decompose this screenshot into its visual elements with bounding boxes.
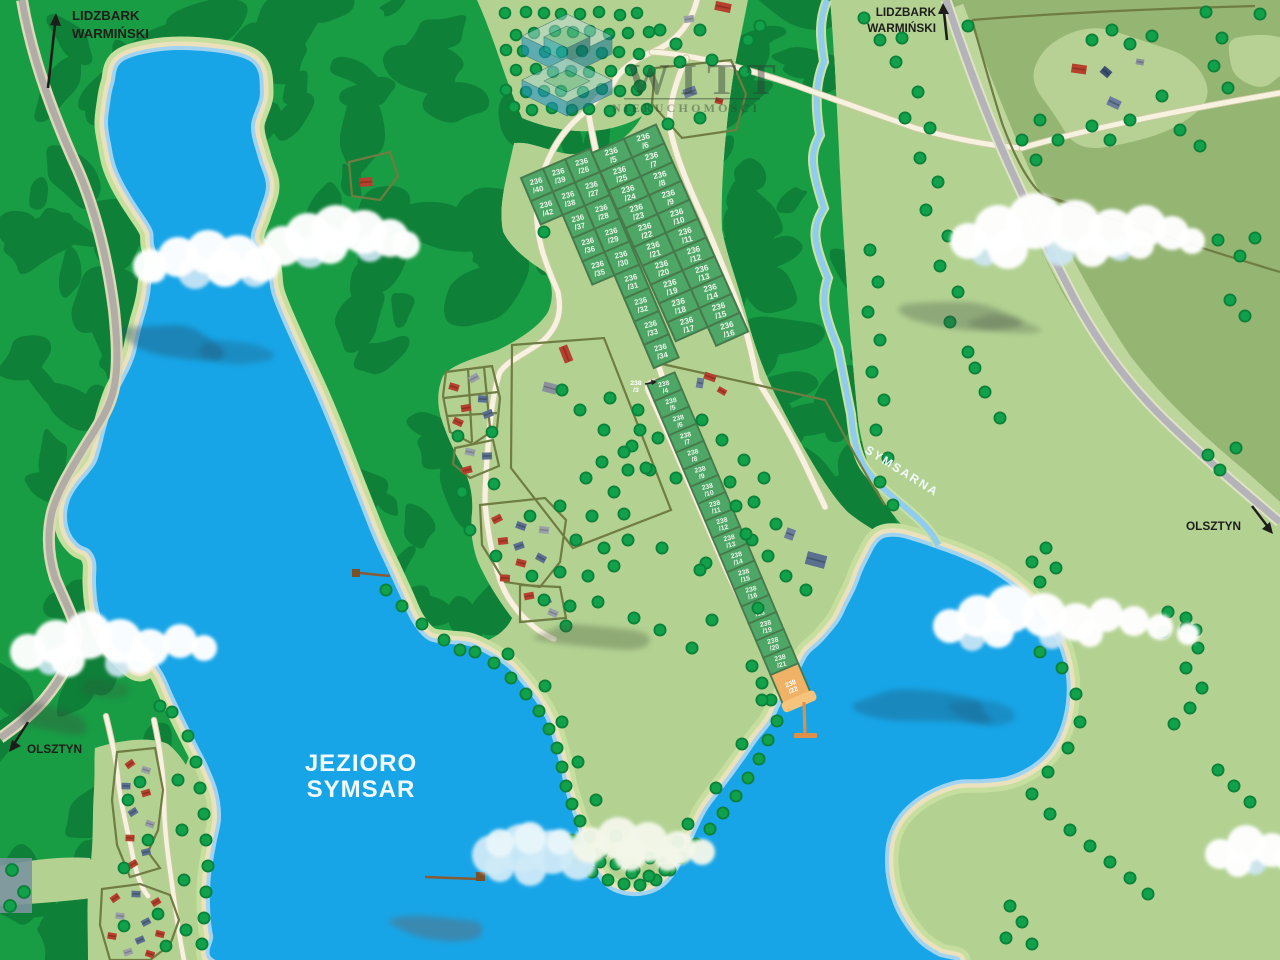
svg-text:WARMIŃSKI: WARMIŃSKI bbox=[72, 26, 149, 41]
svg-text:JEZIORO: JEZIORO bbox=[305, 750, 417, 777]
svg-text:/3: /3 bbox=[633, 387, 639, 394]
svg-text:238: 238 bbox=[630, 380, 642, 387]
svg-text:OLSZTYN: OLSZTYN bbox=[1186, 519, 1241, 533]
svg-text:SYMSAR: SYMSAR bbox=[307, 776, 416, 803]
svg-text:WITT: WITT bbox=[626, 55, 786, 104]
svg-text:WARMIŃSKI: WARMIŃSKI bbox=[867, 21, 936, 35]
svg-text:OLSZTYN: OLSZTYN bbox=[27, 742, 82, 756]
svg-text:LIDZBARK: LIDZBARK bbox=[876, 5, 937, 19]
svg-text:NIERUCHOMOŚCI: NIERUCHOMOŚCI bbox=[612, 101, 760, 115]
svg-text:LIDZBARK: LIDZBARK bbox=[72, 8, 140, 23]
